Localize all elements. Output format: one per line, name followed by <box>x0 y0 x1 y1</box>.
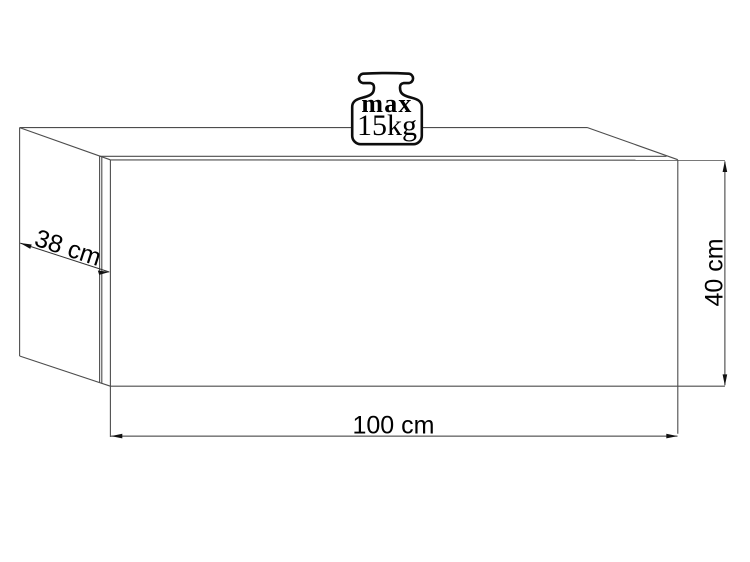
svg-text:100 cm: 100 cm <box>353 411 435 439</box>
svg-text:40 cm: 40 cm <box>701 238 729 306</box>
svg-text:15kg: 15kg <box>357 109 417 142</box>
